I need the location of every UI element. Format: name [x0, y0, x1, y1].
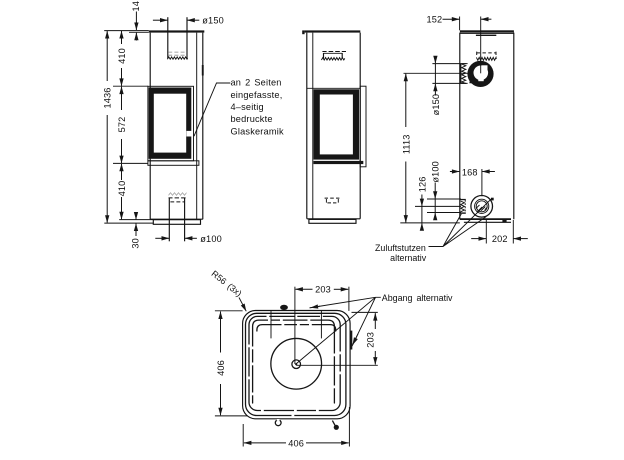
svg-text:ø100: ø100: [431, 161, 441, 183]
svg-text:Glaskeramik: Glaskeramik: [231, 126, 284, 136]
svg-text:126: 126: [417, 177, 427, 193]
svg-text:202: 202: [492, 234, 508, 244]
svg-text:Zuluftstutzen: Zuluftstutzen: [375, 243, 426, 253]
svg-text:ø150: ø150: [431, 94, 441, 116]
svg-text:572: 572: [117, 117, 127, 133]
svg-text:410: 410: [117, 181, 127, 197]
svg-text:an 2 Seiten: an 2 Seiten: [231, 78, 282, 88]
svg-text:203: 203: [315, 285, 331, 295]
svg-text:Abgang alternativ: Abgang alternativ: [382, 293, 453, 303]
svg-text:410: 410: [117, 48, 127, 64]
svg-text:406: 406: [288, 438, 304, 448]
svg-text:1436: 1436: [103, 87, 113, 108]
svg-text:ø150: ø150: [202, 16, 224, 26]
svg-text:30: 30: [131, 238, 141, 249]
svg-text:bedruckte: bedruckte: [231, 114, 273, 124]
svg-text:1113: 1113: [401, 134, 411, 154]
svg-text:14: 14: [131, 1, 141, 12]
svg-text:ø100: ø100: [200, 234, 222, 244]
svg-text:alternativ: alternativ: [390, 253, 427, 263]
svg-text:4–seitig: 4–seitig: [231, 102, 264, 112]
svg-text:203: 203: [365, 332, 375, 348]
svg-text:152: 152: [427, 15, 443, 25]
svg-text:406: 406: [216, 360, 226, 376]
svg-text:eingefasste,: eingefasste,: [231, 90, 283, 100]
svg-text:168: 168: [462, 167, 478, 177]
